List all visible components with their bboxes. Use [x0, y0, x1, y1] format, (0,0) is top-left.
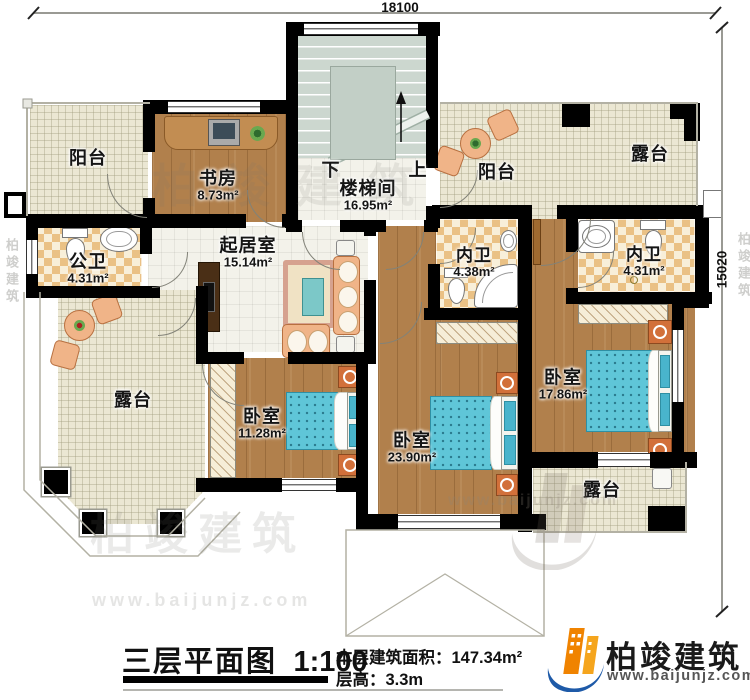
room-label-stairwell: 楼梯间 16.95m²: [340, 179, 397, 214]
room-name: 露台: [583, 480, 621, 500]
floor-area-text: 本层建筑面积：147.34m²: [336, 644, 522, 668]
floor-plan-page: 阳台 书房 8.73m² 楼梯间 16.95m² 下 上 阳台 露台 公卫 4.…: [0, 0, 750, 700]
room-name: 起居室: [220, 236, 277, 256]
room-name: 露台: [631, 144, 669, 164]
room-name: 公卫: [67, 252, 108, 272]
stair-direction: 上: [409, 160, 428, 180]
stair-up-label: 上: [409, 160, 428, 180]
room-label-bedroom-3: 卧室 17.86m²: [539, 368, 587, 403]
wall: [650, 452, 697, 468]
bed-pillow: [504, 401, 516, 431]
room-name: 阳台: [69, 148, 107, 168]
room-area: 4.31m²: [67, 272, 108, 287]
column: [648, 506, 686, 532]
wall: [557, 205, 708, 219]
room-label-terrace-tr: 露台: [631, 144, 669, 164]
terrace-column: [44, 470, 68, 494]
bed-pillow: [660, 393, 670, 426]
wall: [336, 478, 368, 492]
room-area: 16.95m²: [340, 199, 397, 214]
wall: [286, 22, 298, 232]
room-name: 露台: [114, 390, 152, 410]
bed-blanket: [586, 350, 652, 432]
wall: [520, 452, 598, 468]
room-name: 卧室: [238, 407, 286, 427]
column: [562, 103, 590, 127]
room-name: 内卫: [623, 245, 664, 264]
room-name: 卧室: [539, 368, 587, 388]
room-name: 阳台: [478, 162, 516, 182]
title-block: 三层平面图 1:100: [122, 638, 368, 680]
room-area: 4.31m²: [623, 264, 664, 279]
room-label-public-bath: 公卫 4.31m²: [67, 252, 108, 287]
plant-icon: [470, 138, 481, 149]
room-area: 11.28m²: [238, 427, 286, 442]
end-table: [336, 336, 355, 353]
sofa-cushion: [287, 330, 307, 354]
wall: [288, 352, 368, 364]
plan-title: 三层平面图: [122, 646, 277, 678]
corner-column: [684, 103, 700, 141]
room-label-terrace-br: 露台: [583, 480, 621, 500]
room-label-ensuite-bath-1: 内卫 4.38m²: [453, 246, 494, 280]
nightstand: [496, 474, 518, 496]
watermark-edge-text: 柏竣建筑: [734, 232, 750, 300]
plant-icon: [250, 126, 265, 141]
wall: [196, 352, 244, 364]
title-underline-thin: [123, 689, 503, 691]
wall: [695, 205, 709, 304]
room-name: 书房: [197, 169, 238, 189]
wall: [143, 100, 155, 152]
logo-website: www.baijunjz.com: [607, 668, 750, 684]
door-leaf: [533, 219, 541, 265]
bed-blanket: [286, 392, 338, 450]
wall: [364, 280, 376, 364]
bay-window: [703, 190, 722, 218]
nightstand: [648, 320, 672, 344]
room-label-living-room: 起居室 15.14m²: [220, 236, 277, 271]
floor-height-text: 层高：3.3m: [336, 666, 423, 690]
room-label-balcony-tr: 阳台: [478, 162, 516, 182]
stair-direction: 下: [322, 160, 341, 180]
room-label-bedroom-2: 卧室 23.90m²: [388, 431, 436, 466]
room-name: 楼梯间: [340, 179, 397, 199]
nightstand: [496, 372, 518, 394]
toilet-tank: [640, 220, 666, 230]
wall: [426, 22, 438, 168]
room-area: 15.14m²: [220, 256, 277, 271]
room-area: 8.73m²: [197, 189, 238, 204]
wall: [364, 226, 376, 236]
computer-screen-icon: [213, 123, 235, 139]
room-area: 4.38m²: [453, 265, 494, 280]
wall: [428, 264, 440, 314]
room-name: 卧室: [388, 431, 436, 451]
logo-icon: [544, 626, 606, 692]
washbasin: [500, 230, 517, 252]
chimney-box: [4, 192, 26, 218]
room-name: 内卫: [453, 246, 494, 265]
window: [168, 101, 260, 113]
stair-landing-box: [330, 66, 396, 160]
sofa-cushion: [338, 286, 358, 308]
coffee-table: [302, 278, 324, 316]
dimension-top: 18100: [345, 0, 455, 15]
toilet-tank: [62, 228, 88, 238]
watermark-url: www.baijunjz.com: [92, 590, 311, 611]
wardrobe-bedroom2: [436, 322, 518, 344]
wall: [340, 220, 386, 232]
wall: [672, 296, 684, 332]
wall: [428, 219, 440, 228]
planter-box: [652, 468, 672, 489]
window: [282, 479, 336, 491]
door-arc: [247, 190, 285, 228]
sofa-cushion: [338, 261, 358, 283]
dimension-right: 15020: [715, 238, 730, 302]
window: [304, 23, 418, 35]
window: [398, 515, 500, 529]
sofa-cushion: [338, 311, 358, 333]
wall: [356, 514, 398, 530]
terrace-column: [82, 512, 104, 534]
room-area: 23.90m²: [388, 451, 436, 466]
wall: [196, 478, 282, 492]
room-label-bedroom-1: 卧室 11.28m²: [238, 407, 286, 442]
room-label-ensuite-bath-2: 内卫 4.31m²: [623, 245, 664, 279]
bed-pillow: [660, 355, 670, 388]
window: [598, 453, 650, 467]
window: [26, 240, 38, 274]
wall: [356, 364, 368, 530]
wall: [518, 205, 532, 532]
sofa-cushion: [308, 330, 328, 354]
wall: [140, 226, 152, 254]
window: [672, 330, 684, 402]
room-label-balcony-tl: 阳台: [69, 148, 107, 168]
wall: [26, 286, 160, 298]
room-label-study: 书房 8.73m²: [197, 169, 238, 204]
terrace-column: [160, 512, 182, 534]
stair-down-label: 下: [322, 160, 341, 180]
watermark-edge-text: 柏竣建筑: [2, 238, 21, 306]
bed-blanket: [430, 396, 492, 470]
washbasin: [100, 226, 138, 252]
title-underline-thick: [123, 676, 328, 683]
room-area: 17.86m²: [539, 388, 587, 403]
plant-icon: [74, 320, 85, 331]
bed-pillow: [504, 435, 516, 465]
wall: [424, 308, 532, 320]
room-label-terrace-bl: 露台: [114, 390, 152, 410]
